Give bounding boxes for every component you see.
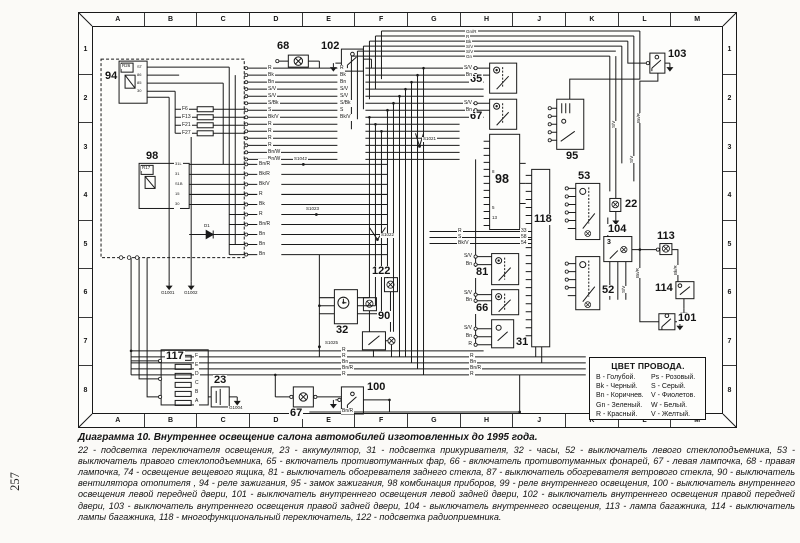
- wire-color-label: S/Bk: [339, 100, 352, 107]
- wire-labels-65: S/VBn: [459, 65, 473, 79]
- wire-color-label: Bn/R: [258, 219, 271, 229]
- wire-color-label: Bk/R: [258, 169, 271, 179]
- wire-color-label: Bk: [339, 72, 347, 79]
- pin-label: 31L: [174, 159, 183, 169]
- wire-labels-81: S/VBn: [459, 252, 473, 268]
- grid-number: 3: [79, 123, 92, 172]
- legend-entry: W - Белый.: [651, 401, 700, 410]
- legend-entries: B - Голубой.Ps - Розовый.Bk - Черный.S -…: [596, 373, 700, 419]
- wire-color-label: Gn: [465, 54, 473, 59]
- fuse-f6: [197, 107, 213, 112]
- diagram-frame: ABCDEFGHJKLM ABCDEFGHJKLM 12345678 12345…: [78, 12, 737, 428]
- component-101-label: 101: [677, 313, 697, 324]
- grid-letter: G: [408, 13, 461, 26]
- ground-g1001: G1001: [160, 291, 176, 296]
- pin-label: 31: [174, 169, 180, 179]
- fuse-label: F6: [181, 105, 189, 113]
- grid-letter: H: [461, 13, 514, 26]
- component-118-box: [532, 169, 550, 346]
- wire-labels-67: S/VBn: [459, 100, 473, 114]
- grid-letter: J: [513, 13, 566, 26]
- legend-entry: S - Серый.: [651, 382, 700, 391]
- component-103-label: 103: [667, 49, 687, 60]
- component-31-label: 31: [515, 337, 529, 348]
- grid-letter: A: [92, 414, 145, 427]
- component-23-label: 23: [213, 375, 227, 386]
- wire-color-label-rot: S/V: [622, 286, 627, 293]
- component-117-label: 117: [165, 351, 185, 362]
- fuse-letter: B: [194, 388, 199, 397]
- component-67-bottom-label: 67: [289, 408, 303, 419]
- grid-letter: G: [408, 414, 461, 427]
- wire-color-legend: ЦВЕТ ПРОВОДА. B - Голубой.Ps - Розовый.B…: [589, 357, 706, 420]
- wire-labels-bus-right: RBnBn/RR: [469, 353, 482, 377]
- grid-letter: A: [92, 13, 145, 26]
- relay-94-pins: ST868530: [136, 63, 143, 95]
- grid-number: 2: [723, 75, 736, 124]
- pin-label: 30: [136, 87, 142, 95]
- legend-entry: V - Фиолетов.: [651, 391, 700, 400]
- wire-color-label: S: [339, 107, 344, 114]
- component-32-label: 32: [335, 325, 349, 336]
- fusebox-letters: FEDCBA: [194, 352, 200, 406]
- component-66-label: 66: [475, 303, 489, 314]
- grid-band-top: ABCDEFGHJKLM: [92, 13, 723, 26]
- splice-s1022: S1022: [380, 233, 395, 238]
- component-68-label: 68: [276, 41, 290, 52]
- grid-letter: F: [355, 13, 408, 26]
- relay-r26-label: R26: [121, 64, 131, 69]
- wire-color-label: R: [469, 371, 475, 377]
- pin-label: 30: [174, 199, 180, 209]
- pin-label: S1B: [174, 179, 184, 189]
- component-122-label: 122: [371, 266, 391, 277]
- wire-color-label: S: [267, 107, 272, 114]
- fuse-letter: D: [194, 370, 200, 379]
- wire-color-label: Bk/V: [258, 179, 271, 189]
- grid-letter: F: [355, 414, 408, 427]
- wire-labels-top-right: Gn/RRBkS/VS/VGn: [465, 29, 478, 59]
- wire-color-label: Gn/R: [465, 29, 478, 34]
- wire-color-label-rot: S/V: [630, 156, 635, 163]
- grid-number: 7: [723, 318, 736, 367]
- grid-number: 8: [723, 366, 736, 414]
- wire-color-label: Bk: [267, 72, 275, 79]
- grid-letter: H: [461, 414, 514, 427]
- wire-color-label: R: [267, 135, 273, 142]
- wire-color-label: S/V: [267, 86, 277, 93]
- component-32-box: [334, 290, 357, 324]
- wire-color-label: Bk/V: [339, 114, 352, 121]
- component-94-label: 94: [104, 71, 118, 82]
- grid-letter: E: [303, 13, 356, 26]
- wire-color-label: Bk/V: [457, 240, 470, 246]
- splice-s1023: S1023: [305, 207, 320, 212]
- grid-letter: B: [145, 13, 198, 26]
- grid-number: 5: [79, 221, 92, 270]
- component-113-label: 113: [656, 231, 676, 242]
- component-104-label: 104: [607, 224, 627, 235]
- fuse-letter: F: [194, 352, 199, 361]
- splice-s1042: S1042: [293, 157, 308, 162]
- wire-color-label: Bn: [258, 229, 266, 239]
- wire-color-label: Bn: [258, 239, 266, 249]
- grid-letter: D: [250, 13, 303, 26]
- relay-98-pins: 31L31S1B1530: [174, 159, 184, 209]
- wire-color-label: Bn: [465, 107, 473, 114]
- legend-entry: V - Желтый.: [651, 410, 700, 419]
- grid-number: 8: [79, 366, 92, 414]
- wire-color-label-rot: Bn/R: [636, 268, 641, 278]
- grid-letter: C: [197, 13, 250, 26]
- wire-color-label: R: [267, 65, 273, 72]
- pin-label: 86: [136, 71, 142, 79]
- component-53-label: 53: [577, 171, 591, 182]
- wire-color-label: Bn: [339, 79, 347, 86]
- grid-band-right: 12345678: [723, 26, 736, 414]
- grid-letter: M: [671, 13, 723, 26]
- grid-number: 1: [79, 26, 92, 75]
- ground-g1002: G1002: [183, 291, 199, 296]
- component-102-label: 102: [320, 41, 340, 52]
- fuse-label: F21: [181, 121, 192, 129]
- legend-entry: Bk - Черный.: [596, 382, 651, 391]
- wire-color-label: Bk: [258, 199, 266, 209]
- connector-118-pins: 335854: [520, 228, 528, 246]
- pin-label: 85: [136, 79, 142, 87]
- wire-color-label: S/V: [465, 44, 474, 49]
- grid-letter: K: [566, 13, 619, 26]
- legend-entry: B - Голубой.: [596, 373, 651, 382]
- wire-color-label: Bn: [258, 249, 266, 259]
- wire-labels-left: RBkBnS/VS/VS/BkSBk/VRRRRBn/WBn/W: [267, 65, 281, 163]
- fuse-label: F27: [181, 129, 192, 137]
- wire-color-label: S/V: [267, 93, 277, 100]
- wire-color-label: Bn: [465, 297, 473, 304]
- wire-color-label: Bn: [465, 72, 473, 79]
- wire-rows: [131, 31, 640, 412]
- wire-color-label: S/V: [463, 290, 473, 297]
- fuse-letter: A: [194, 397, 199, 406]
- cluster-pin-13: 13: [491, 216, 498, 221]
- wire-color-label: R: [267, 128, 273, 135]
- fuse-letter: E: [194, 361, 199, 370]
- legend-entry: Ps - Розовый.: [651, 373, 700, 382]
- component-22-label: 22: [624, 199, 638, 210]
- wire-color-label: Bk/V: [267, 114, 280, 121]
- wire-color-label: S/V: [339, 93, 349, 100]
- caption-body: 22 - подсветка переключателя освещения, …: [78, 445, 795, 523]
- caption: Диаграмма 10. Внутреннее освещение салон…: [78, 432, 795, 523]
- component-81-label: 81: [475, 267, 489, 278]
- grid-number: 6: [723, 269, 736, 318]
- fuse-labels: F6F13F21F27: [181, 105, 192, 137]
- cluster-pin-5: 5: [491, 206, 496, 211]
- component-118-label: 118: [533, 214, 553, 225]
- component-114-label: 114: [654, 283, 674, 294]
- wire-color-label: Bn: [465, 332, 473, 340]
- component-100-label: 100: [366, 382, 386, 393]
- splice-s1025: S1025: [324, 341, 339, 346]
- wire-color-label-bnr: Bn/R: [341, 409, 354, 414]
- grid-number: 1: [723, 26, 736, 75]
- component-31-box: [492, 320, 514, 348]
- legend-title: ЦВЕТ ПРОВОДА.: [596, 361, 700, 371]
- pin-label: 15: [174, 189, 180, 199]
- wire-color-label-rot: Bk/R: [674, 265, 679, 275]
- grid-number: 4: [723, 172, 736, 221]
- grid-letter: J: [513, 414, 566, 427]
- wire-color-label: S/V: [463, 100, 473, 107]
- fuse-label: F13: [181, 113, 192, 121]
- wire-labels-31: S/VBnR: [459, 324, 473, 348]
- wire-color-label: S/V: [463, 324, 473, 332]
- legend-entry: Bn - Коричнев.: [596, 391, 651, 400]
- grid-number: 2: [79, 75, 92, 124]
- wire-color-label: R: [341, 371, 347, 377]
- grid-number: 7: [79, 318, 92, 367]
- legend-entry: Gn - Зеленый.: [596, 401, 651, 410]
- component-95-label: 95: [565, 151, 579, 162]
- grid-letter: B: [145, 414, 198, 427]
- wire-color-label: R: [339, 65, 345, 72]
- grid-number: 4: [79, 172, 92, 221]
- wire-color-label: R: [258, 189, 264, 199]
- switch-104-position-label: 3: [606, 239, 612, 246]
- page-number: 257: [8, 472, 23, 491]
- wire-color-label-rot: S/V: [612, 121, 617, 128]
- wire-color-label: S/V: [339, 86, 349, 93]
- fuse-f13: [197, 115, 213, 120]
- wire-color-label: S/Bk: [267, 100, 280, 107]
- wire-labels-left-2: Bn/RBk/RBk/VRBkRBn/RBnBnBn: [258, 159, 271, 259]
- wire-color-label: S/V: [463, 65, 473, 72]
- wire-color-label: S/V: [465, 49, 474, 54]
- relay-r17-label: R17: [141, 166, 151, 171]
- grid-number: 6: [79, 269, 92, 318]
- cluster-pin-8: 8: [491, 170, 496, 175]
- wire-color-label: Bn: [465, 260, 473, 268]
- component-98-relay-label: 98: [145, 151, 159, 162]
- wire-color-label: S/V: [463, 252, 473, 260]
- wire-labels-mid: RBkBnS/VS/VS/BkSBk/V: [339, 65, 352, 121]
- component-95-box: [557, 99, 584, 149]
- junction-dots: [130, 67, 641, 413]
- wire-color-label-rot: Bn/R: [637, 113, 642, 123]
- grid-letter: E: [303, 414, 356, 427]
- diode-d1-label: D1: [203, 224, 211, 229]
- fuse-f21: [197, 123, 213, 128]
- wire-labels-118: RSBk/V: [457, 228, 470, 246]
- component-90-label: 90: [377, 311, 391, 322]
- wire-labels-bus-left: RRBnBn/RR: [341, 347, 354, 377]
- wire-color-label: R: [467, 340, 473, 348]
- grid-letter: C: [197, 414, 250, 427]
- wire-verticals: [131, 31, 684, 412]
- fuse-f27: [197, 131, 213, 136]
- wire-color-label: Bn/W: [267, 149, 281, 156]
- legend-entry: R - Красный.: [596, 410, 651, 419]
- wire-color-label: Bn/R: [258, 159, 271, 169]
- pin-label: 54: [520, 240, 528, 246]
- wire-color-label: Bn: [267, 79, 275, 86]
- grid-number: 3: [723, 123, 736, 172]
- fuse-letter: C: [194, 379, 200, 388]
- grid-band-left: 12345678: [79, 26, 92, 414]
- component-98-cluster-label: 98: [494, 173, 510, 186]
- pin-label: ST: [136, 63, 143, 71]
- wire-color-label: R: [258, 209, 264, 219]
- wire-color-label: Bk: [465, 39, 472, 44]
- splice-s1021: S1021: [422, 137, 437, 142]
- grid-number: 5: [723, 221, 736, 270]
- wire-labels-66: S/VBn: [459, 290, 473, 304]
- wire-color-label: R: [267, 142, 273, 149]
- grid-letter: L: [619, 13, 672, 26]
- wire-color-label: R: [267, 121, 273, 128]
- component-52-label: 52: [601, 285, 615, 296]
- ground-g1004: G1004: [228, 406, 244, 411]
- caption-title: Диаграмма 10. Внутреннее освещение салон…: [78, 432, 795, 443]
